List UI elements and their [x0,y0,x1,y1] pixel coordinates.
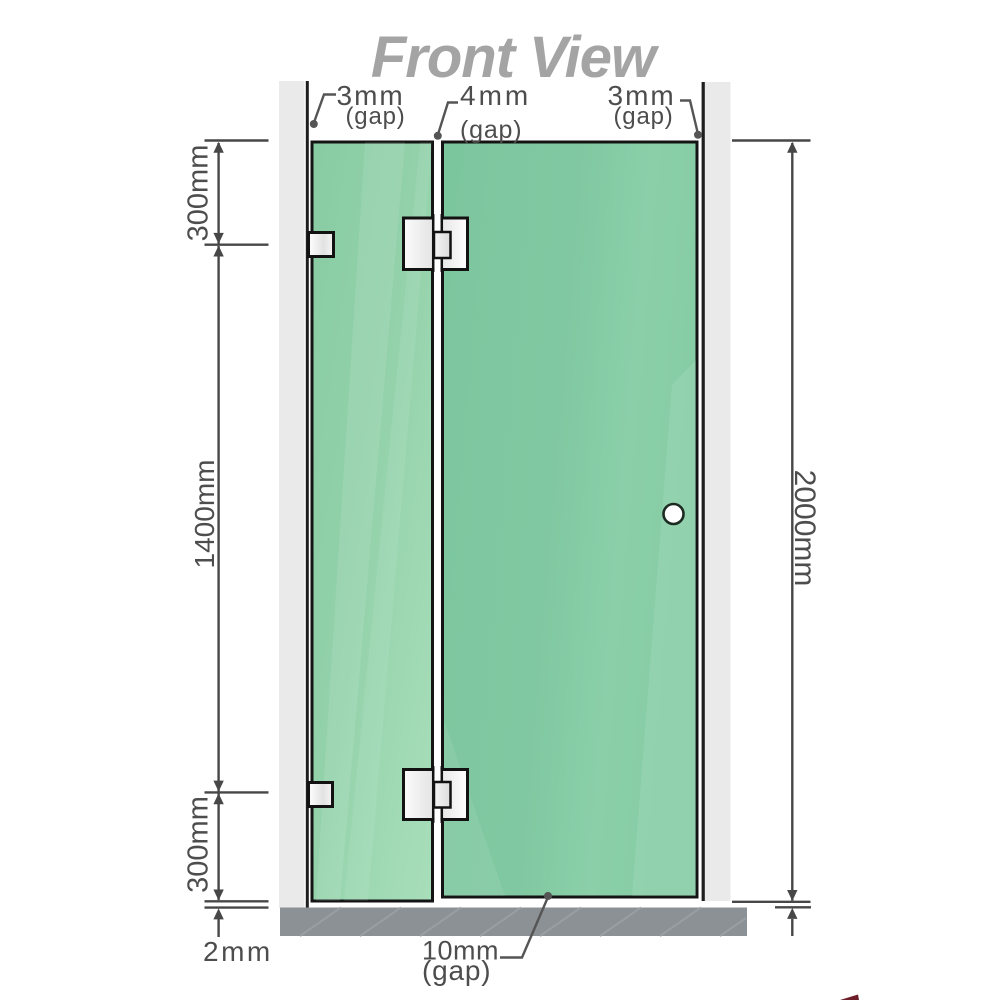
svg-text:300mm: 300mm [183,145,215,242]
svg-text:2000mm: 2000mm [788,470,821,587]
svg-text:(gap): (gap) [614,103,674,130]
svg-text:300mm: 300mm [183,796,215,893]
svg-text:2mm: 2mm [203,936,273,967]
svg-text:4mm: 4mm [460,80,531,111]
svg-text:1400mm: 1400mm [189,460,220,569]
svg-text:(gap): (gap) [422,955,491,986]
svg-text:(gap): (gap) [346,103,406,130]
svg-text:(gap): (gap) [460,116,522,144]
